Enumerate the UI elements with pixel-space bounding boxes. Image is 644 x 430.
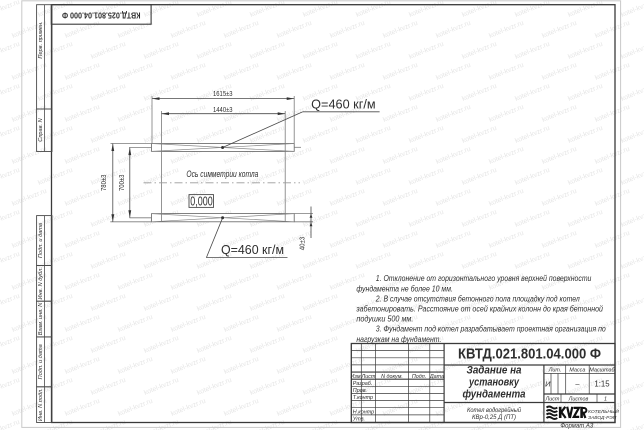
- svg-text:kotel-kvzr.ru: kotel-kvzr.ru: [382, 356, 419, 376]
- svg-text:КВр-0,25 Д (ПТ): КВр-0,25 Д (ПТ): [472, 414, 516, 421]
- svg-text:kotel-kvzr.ru: kotel-kvzr.ru: [223, 398, 260, 418]
- svg-text:kotel-kvzr.ru: kotel-kvzr.ru: [64, 62, 101, 82]
- svg-text:Т.контр: Т.контр: [353, 395, 373, 401]
- svg-text:КВТД.025.801.04.000 Ф: КВТД.025.801.04.000 Ф: [62, 10, 141, 19]
- svg-text:kotel-kvzr.ru: kotel-kvzr.ru: [0, 377, 21, 397]
- svg-text:kotel-kvzr.ru: kotel-kvzr.ru: [488, 20, 525, 40]
- svg-text:kotel-kvzr.ru: kotel-kvzr.ru: [514, 419, 551, 430]
- svg-text:kotel-kvzr.ru: kotel-kvzr.ru: [461, 41, 498, 61]
- svg-text:kotel-kvzr.ru: kotel-kvzr.ru: [64, 356, 101, 376]
- svg-text:kotel-kvzr.ru: kotel-kvzr.ru: [329, 230, 366, 250]
- svg-text:kotel-kvzr.ru: kotel-kvzr.ru: [514, 209, 551, 229]
- svg-text:kotel-kvzr.ru: kotel-kvzr.ru: [355, 41, 392, 61]
- svg-text:kotel-kvzr.ru: kotel-kvzr.ru: [249, 0, 286, 19]
- svg-text:kotel-kvzr.ru: kotel-kvzr.ru: [170, 62, 207, 82]
- svg-text:фундамента не более 10 мм.: фундамента не более 10 мм.: [356, 284, 453, 293]
- svg-text:kotel-kvzr.ru: kotel-kvzr.ru: [117, 314, 154, 334]
- svg-text:kotel-kvzr.ru: kotel-kvzr.ru: [382, 104, 419, 124]
- svg-text:kotel-kvzr.ru: kotel-kvzr.ru: [90, 83, 127, 103]
- svg-text:kotel-kvzr.ru: kotel-kvzr.ru: [276, 398, 313, 418]
- svg-text:Инв. N подл.: Инв. N подл.: [38, 388, 44, 421]
- svg-text:kotel-kvzr.ru: kotel-kvzr.ru: [620, 167, 644, 187]
- svg-text:забетонировать. Расстояние от: забетонировать. Расстояние от осей крайн…: [355, 305, 603, 314]
- svg-text:kotel-kvzr.ru: kotel-kvzr.ru: [0, 335, 21, 355]
- svg-text:kotel-kvzr.ru: kotel-kvzr.ru: [302, 419, 339, 430]
- svg-text:Лист: Лист: [545, 396, 560, 402]
- svg-text:kotel-kvzr.ru: kotel-kvzr.ru: [567, 251, 604, 271]
- svg-text:kotel-kvzr.ru: kotel-kvzr.ru: [302, 0, 339, 19]
- svg-text:kotel-kvzr.ru: kotel-kvzr.ru: [594, 62, 631, 82]
- svg-text:40±3: 40±3: [298, 237, 307, 251]
- svg-text:kotel-kvzr.ru: kotel-kvzr.ru: [249, 83, 286, 103]
- svg-text:Дата: Дата: [429, 374, 444, 380]
- svg-text:kotel-kvzr.ru: kotel-kvzr.ru: [329, 20, 366, 40]
- svg-text:kotel-kvzr.ru: kotel-kvzr.ru: [594, 104, 631, 124]
- svg-text:kotel-kvzr.ru: kotel-kvzr.ru: [0, 83, 21, 103]
- svg-text:Пров.: Пров.: [353, 388, 367, 394]
- svg-text:kotel-kvzr.ru: kotel-kvzr.ru: [143, 0, 180, 19]
- svg-text:kotel-kvzr.ru: kotel-kvzr.ru: [408, 251, 445, 271]
- svg-text:kotel-kvzr.ru: kotel-kvzr.ru: [435, 62, 472, 82]
- svg-text:kotel-kvzr.ru: kotel-kvzr.ru: [64, 20, 101, 40]
- svg-text:kotel-kvzr.ru: kotel-kvzr.ru: [620, 251, 644, 271]
- svg-text:kotel-kvzr.ru: kotel-kvzr.ru: [461, 167, 498, 187]
- svg-text:kotel-kvzr.ru: kotel-kvzr.ru: [355, 251, 392, 271]
- svg-text:kotel-kvzr.ru: kotel-kvzr.ru: [620, 419, 644, 430]
- svg-text:0,000: 0,000: [190, 194, 212, 208]
- svg-text:Инв. N дубл.: Инв. N дубл.: [38, 267, 44, 299]
- svg-text:kotel-kvzr.ru: kotel-kvzr.ru: [567, 209, 604, 229]
- svg-text:3. Фундамент под котел разраба: 3. Фундамент под котел разрабатывает про…: [376, 325, 607, 334]
- svg-text:kotel-kvzr.ru: kotel-kvzr.ru: [329, 188, 366, 208]
- svg-text:kotel-kvzr.ru: kotel-kvzr.ru: [541, 20, 578, 40]
- svg-text:kotel-kvzr.ru: kotel-kvzr.ru: [223, 356, 260, 376]
- svg-text:700±3: 700±3: [117, 175, 126, 192]
- svg-text:kotel-kvzr.ru: kotel-kvzr.ru: [90, 419, 127, 430]
- svg-text:kotel-kvzr.ru: kotel-kvzr.ru: [170, 314, 207, 334]
- svg-text:kotel-kvzr.ru: kotel-kvzr.ru: [329, 62, 366, 82]
- svg-text:kotel-kvzr.ru: kotel-kvzr.ru: [0, 0, 21, 19]
- svg-text:kotel-kvzr.ru: kotel-kvzr.ru: [117, 20, 154, 40]
- svg-text:kotel-kvzr.ru: kotel-kvzr.ru: [90, 293, 127, 313]
- svg-text:kotel-kvzr.ru: kotel-kvzr.ru: [594, 230, 631, 250]
- svg-text:kotel-kvzr.ru: kotel-kvzr.ru: [355, 125, 392, 145]
- svg-text:kotel-kvzr.ru: kotel-kvzr.ru: [11, 146, 48, 166]
- svg-text:kotel-kvzr.ru: kotel-kvzr.ru: [143, 41, 180, 61]
- svg-text:kotel-kvzr.ru: kotel-kvzr.ru: [355, 0, 392, 19]
- svg-text:kotel-kvzr.ru: kotel-kvzr.ru: [382, 62, 419, 82]
- svg-text:kotel-kvzr.ru: kotel-kvzr.ru: [514, 0, 551, 19]
- svg-text:Масштаб: Масштаб: [589, 367, 615, 373]
- svg-text:kotel-kvzr.ru: kotel-kvzr.ru: [64, 314, 101, 334]
- svg-text:kotel-kvzr.ru: kotel-kvzr.ru: [117, 146, 154, 166]
- svg-text:kotel-kvzr.ru: kotel-kvzr.ru: [276, 20, 313, 40]
- svg-text:kotel-kvzr.ru: kotel-kvzr.ru: [408, 167, 445, 187]
- svg-text:kotel-kvzr.ru: kotel-kvzr.ru: [276, 314, 313, 334]
- svg-text:kotel-kvzr.ru: kotel-kvzr.ru: [461, 0, 498, 19]
- svg-text:kotel-kvzr.ru: kotel-kvzr.ru: [620, 335, 644, 355]
- svg-text:kotel-kvzr.ru: kotel-kvzr.ru: [594, 188, 631, 208]
- svg-text:kotel-kvzr.ru: kotel-kvzr.ru: [514, 251, 551, 271]
- svg-text:kotel-kvzr.ru: kotel-kvzr.ru: [567, 41, 604, 61]
- svg-text:kotel-kvzr.ru: kotel-kvzr.ru: [329, 146, 366, 166]
- svg-text:kotel-kvzr.ru: kotel-kvzr.ru: [408, 41, 445, 61]
- svg-text:kotel-kvzr.ru: kotel-kvzr.ru: [64, 146, 101, 166]
- svg-text:kotel-kvzr.ru: kotel-kvzr.ru: [382, 20, 419, 40]
- svg-text:kotel-kvzr.ru: kotel-kvzr.ru: [196, 293, 233, 313]
- svg-text:kotel-kvzr.ru: kotel-kvzr.ru: [143, 83, 180, 103]
- svg-text:kotel-kvzr.ru: kotel-kvzr.ru: [514, 41, 551, 61]
- svg-text:kotel-kvzr.ru: kotel-kvzr.ru: [302, 125, 339, 145]
- svg-text:Задание на: Задание на: [467, 365, 522, 377]
- svg-text:kotel-kvzr.ru: kotel-kvzr.ru: [488, 230, 525, 250]
- svg-text:kotel-kvzr.ru: kotel-kvzr.ru: [276, 356, 313, 376]
- svg-text:ЗАВОД-РЭП: ЗАВОД-РЭП: [588, 415, 617, 421]
- svg-text:1. Отклонение от горизонтально: 1. Отклонение от горизонтального уровня …: [376, 274, 592, 283]
- svg-text:Лист: Лист: [361, 374, 376, 380]
- svg-text:kotel-kvzr.ru: kotel-kvzr.ru: [541, 104, 578, 124]
- svg-text:kotel-kvzr.ru: kotel-kvzr.ru: [302, 293, 339, 313]
- svg-text:kotel-kvzr.ru: kotel-kvzr.ru: [488, 62, 525, 82]
- svg-text:kotel-kvzr.ru: kotel-kvzr.ru: [249, 377, 286, 397]
- svg-text:kotel-kvzr.ru: kotel-kvzr.ru: [620, 41, 644, 61]
- svg-text:kotel-kvzr.ru: kotel-kvzr.ru: [382, 188, 419, 208]
- svg-text:kotel-kvzr.ru: kotel-kvzr.ru: [620, 293, 644, 313]
- svg-text:kotel-kvzr.ru: kotel-kvzr.ru: [170, 398, 207, 418]
- svg-text:kotel-kvzr.ru: kotel-kvzr.ru: [11, 188, 48, 208]
- svg-text:kotel-kvzr.ru: kotel-kvzr.ru: [117, 272, 154, 292]
- svg-text:kotel-kvzr.ru: kotel-kvzr.ru: [117, 398, 154, 418]
- svg-text:Котел водогрейный: Котел водогрейный: [467, 406, 521, 414]
- svg-text:Ось симметрии котла: Ось симметрии котла: [186, 169, 258, 179]
- svg-text:Разраб.: Разраб.: [353, 381, 373, 387]
- svg-text:kotel-kvzr.ru: kotel-kvzr.ru: [408, 83, 445, 103]
- svg-text:kotel-kvzr.ru: kotel-kvzr.ru: [276, 188, 313, 208]
- svg-text:kotel-kvzr.ru: kotel-kvzr.ru: [196, 0, 233, 19]
- svg-text:kotel-kvzr.ru: kotel-kvzr.ru: [302, 41, 339, 61]
- svg-text:kotel-kvzr.ru: kotel-kvzr.ru: [0, 125, 21, 145]
- svg-text:kotel-kvzr.ru: kotel-kvzr.ru: [461, 83, 498, 103]
- svg-text:1: 1: [604, 396, 607, 402]
- svg-text:kotel-kvzr.ru: kotel-kvzr.ru: [276, 272, 313, 292]
- svg-text:kotel-kvzr.ru: kotel-kvzr.ru: [541, 62, 578, 82]
- svg-text:kotel-kvzr.ru: kotel-kvzr.ru: [117, 230, 154, 250]
- svg-text:kotel-kvzr.ru: kotel-kvzr.ru: [488, 104, 525, 124]
- svg-text:kotel-kvzr.ru: kotel-kvzr.ru: [143, 377, 180, 397]
- svg-text:kotel-kvzr.ru: kotel-kvzr.ru: [90, 209, 127, 229]
- svg-text:Перв. примен.: Перв. примен.: [38, 21, 44, 58]
- svg-text:kotel-kvzr.ru: kotel-kvzr.ru: [567, 167, 604, 187]
- svg-text:kotel-kvzr.ru: kotel-kvzr.ru: [196, 41, 233, 61]
- svg-text:kotel-kvzr.ru: kotel-kvzr.ru: [620, 83, 644, 103]
- svg-text:kotel-kvzr.ru: kotel-kvzr.ru: [64, 104, 101, 124]
- svg-text:kotel-kvzr.ru: kotel-kvzr.ru: [196, 125, 233, 145]
- svg-text:kotel-kvzr.ru: kotel-kvzr.ru: [435, 230, 472, 250]
- svg-text:kotel-kvzr.ru: kotel-kvzr.ru: [541, 146, 578, 166]
- svg-text:kotel-kvzr.ru: kotel-kvzr.ru: [143, 251, 180, 271]
- svg-text:kotel-kvzr.ru: kotel-kvzr.ru: [620, 0, 644, 19]
- svg-text:kotel-kvzr.ru: kotel-kvzr.ru: [329, 356, 366, 376]
- svg-text:2. В случае отсутствия бетонно: 2. В случае отсутствия бетонного пола пл…: [375, 294, 580, 303]
- svg-text:kotel-kvzr.ru: kotel-kvzr.ru: [196, 419, 233, 430]
- svg-text:kotel-kvzr.ru: kotel-kvzr.ru: [64, 230, 101, 250]
- svg-text:kotel-kvzr.ru: kotel-kvzr.ru: [249, 41, 286, 61]
- svg-text:Формат А3: Формат А3: [560, 424, 593, 430]
- svg-text:kotel-kvzr.ru: kotel-kvzr.ru: [541, 188, 578, 208]
- svg-text:kotel-kvzr.ru: kotel-kvzr.ru: [11, 62, 48, 82]
- svg-text:kotel-kvzr.ru: kotel-kvzr.ru: [461, 251, 498, 271]
- svg-text:фундамента: фундамента: [463, 389, 526, 401]
- svg-text:N докум.: N докум.: [381, 374, 403, 380]
- svg-text:kotel-kvzr.ru: kotel-kvzr.ru: [170, 230, 207, 250]
- svg-text:kotel-kvzr.ru: kotel-kvzr.ru: [249, 419, 286, 430]
- svg-text:kotel-kvzr.ru: kotel-kvzr.ru: [382, 230, 419, 250]
- svg-text:КВТД.021.801.04.000 Ф: КВТД.021.801.04.000 Ф: [458, 346, 601, 362]
- svg-text:Взам. инв. N: Взам. инв. N: [38, 302, 44, 336]
- svg-text:kotel-kvzr.ru: kotel-kvzr.ru: [90, 251, 127, 271]
- svg-text:kotel-kvzr.ru: kotel-kvzr.ru: [567, 83, 604, 103]
- svg-text:kotel-kvzr.ru: kotel-kvzr.ru: [249, 335, 286, 355]
- svg-text:kotel-kvzr.ru: kotel-kvzr.ru: [0, 251, 21, 271]
- svg-text:kotel-kvzr.ru: kotel-kvzr.ru: [488, 146, 525, 166]
- svg-text:kotel-kvzr.ru: kotel-kvzr.ru: [90, 125, 127, 145]
- svg-text:kotel-kvzr.ru: kotel-kvzr.ru: [0, 167, 21, 187]
- svg-text:kotel-kvzr.ru: kotel-kvzr.ru: [0, 293, 21, 313]
- svg-text:И: И: [545, 380, 551, 389]
- svg-text:kotel-kvzr.ru: kotel-kvzr.ru: [37, 83, 74, 103]
- svg-text:kotel-kvzr.ru: kotel-kvzr.ru: [223, 314, 260, 334]
- svg-text:kotel-kvzr.ru: kotel-kvzr.ru: [488, 188, 525, 208]
- svg-text:kotel-kvzr.ru: kotel-kvzr.ru: [620, 125, 644, 145]
- svg-text:Утв.: Утв.: [352, 417, 365, 423]
- svg-text:kotel-kvzr.ru: kotel-kvzr.ru: [302, 377, 339, 397]
- svg-text:kotel-kvzr.ru: kotel-kvzr.ru: [223, 272, 260, 292]
- svg-text:kotel-kvzr.ru: kotel-kvzr.ru: [620, 209, 644, 229]
- svg-text:kotel-kvzr.ru: kotel-kvzr.ru: [117, 62, 154, 82]
- svg-text:kotel-kvzr.ru: kotel-kvzr.ru: [620, 377, 644, 397]
- svg-text:установку: установку: [468, 377, 520, 389]
- svg-text:kotel-kvzr.ru: kotel-kvzr.ru: [223, 20, 260, 40]
- svg-text:Справ. N: Справ. N: [38, 117, 44, 141]
- svg-text:kotel-kvzr.ru: kotel-kvzr.ru: [117, 104, 154, 124]
- svg-text:kotel-kvzr.ru: kotel-kvzr.ru: [223, 188, 260, 208]
- svg-text:Подп. и дата: Подп. и дата: [38, 344, 44, 379]
- svg-text:kotel-kvzr.ru: kotel-kvzr.ru: [461, 125, 498, 145]
- svg-text:kotel-kvzr.ru: kotel-kvzr.ru: [90, 41, 127, 61]
- svg-text:kotel-kvzr.ru: kotel-kvzr.ru: [541, 230, 578, 250]
- svg-text:kotel-kvzr.ru: kotel-kvzr.ru: [117, 356, 154, 376]
- svg-text:kotel-kvzr.ru: kotel-kvzr.ru: [0, 419, 21, 430]
- svg-text:1440±3: 1440±3: [213, 105, 233, 114]
- svg-text:kotel-kvzr.ru: kotel-kvzr.ru: [594, 146, 631, 166]
- svg-text:kotel-kvzr.ru: kotel-kvzr.ru: [170, 272, 207, 292]
- svg-text:kotel-kvzr.ru: kotel-kvzr.ru: [408, 419, 445, 430]
- svg-text:kotel-kvzr.ru: kotel-kvzr.ru: [64, 398, 101, 418]
- svg-text:kotel-kvzr.ru: kotel-kvzr.ru: [514, 83, 551, 103]
- svg-text:kotel-kvzr.ru: kotel-kvzr.ru: [408, 125, 445, 145]
- svg-text:kotel-kvzr.ru: kotel-kvzr.ru: [143, 335, 180, 355]
- svg-text:kotel-kvzr.ru: kotel-kvzr.ru: [143, 293, 180, 313]
- svg-text:kotel-kvzr.ru: kotel-kvzr.ru: [196, 377, 233, 397]
- svg-text:kotel-kvzr.ru: kotel-kvzr.ru: [90, 377, 127, 397]
- svg-text:kotel-kvzr.ru: kotel-kvzr.ru: [302, 335, 339, 355]
- svg-text:Н.контр: Н.контр: [353, 410, 374, 416]
- svg-text:kotel-kvzr.ru: kotel-kvzr.ru: [0, 41, 21, 61]
- svg-text:kotel-kvzr.ru: kotel-kvzr.ru: [223, 62, 260, 82]
- svg-text:kotel-kvzr.ru: kotel-kvzr.ru: [249, 293, 286, 313]
- svg-text:kotel-kvzr.ru: kotel-kvzr.ru: [302, 251, 339, 271]
- svg-text:Подп. и дата: Подп. и дата: [38, 223, 44, 258]
- svg-text:kotel-kvzr.ru: kotel-kvzr.ru: [435, 146, 472, 166]
- svg-text:kotel-kvzr.ru: kotel-kvzr.ru: [514, 167, 551, 187]
- svg-text:kotel-kvzr.ru: kotel-kvzr.ru: [408, 209, 445, 229]
- svg-text:Масса: Масса: [569, 367, 585, 373]
- svg-text:kotel-kvzr.ru: kotel-kvzr.ru: [0, 209, 21, 229]
- svg-text:kotel-kvzr.ru: kotel-kvzr.ru: [594, 20, 631, 40]
- svg-text:kotel-kvzr.ru: kotel-kvzr.ru: [382, 146, 419, 166]
- svg-text:kotel-kvzr.ru: kotel-kvzr.ru: [408, 0, 445, 19]
- svg-text:Изм.: Изм.: [351, 374, 363, 380]
- svg-text:kotel-kvzr.ru: kotel-kvzr.ru: [64, 188, 101, 208]
- svg-text:kotel-kvzr.ru: kotel-kvzr.ru: [514, 125, 551, 145]
- svg-text:kotel-kvzr.ru: kotel-kvzr.ru: [196, 335, 233, 355]
- svg-text:подушки 500 мм.: подушки 500 мм.: [356, 315, 413, 324]
- svg-text:1615±3: 1615±3: [213, 89, 233, 98]
- svg-text:kotel-kvzr.ru: kotel-kvzr.ru: [355, 209, 392, 229]
- svg-text:kotel-kvzr.ru: kotel-kvzr.ru: [64, 272, 101, 292]
- svg-text:kotel-kvzr.ru: kotel-kvzr.ru: [355, 167, 392, 187]
- svg-text:kotel-kvzr.ru: kotel-kvzr.ru: [37, 167, 74, 187]
- svg-text:Q=460 кг/м: Q=460 кг/м: [221, 243, 284, 257]
- svg-text:kotel-kvzr.ru: kotel-kvzr.ru: [435, 20, 472, 40]
- svg-text:нагрузкам на фундамент.: нагрузкам на фундамент.: [356, 335, 441, 344]
- svg-text:kotel-kvzr.ru: kotel-kvzr.ru: [302, 167, 339, 187]
- svg-text:kotel-kvzr.ru: kotel-kvzr.ru: [567, 0, 604, 19]
- svg-text:kotel-kvzr.ru: kotel-kvzr.ru: [594, 272, 631, 292]
- svg-text:kotel-kvzr.ru: kotel-kvzr.ru: [276, 62, 313, 82]
- svg-text:kotel-kvzr.ru: kotel-kvzr.ru: [143, 419, 180, 430]
- svg-text:kotel-kvzr.ru: kotel-kvzr.ru: [90, 335, 127, 355]
- svg-text:kotel-kvzr.ru: kotel-kvzr.ru: [302, 209, 339, 229]
- svg-text:kotel-kvzr.ru: kotel-kvzr.ru: [170, 20, 207, 40]
- svg-text:Листов: Листов: [568, 396, 589, 402]
- svg-text:1:15: 1:15: [594, 380, 610, 389]
- svg-text:kotel-kvzr.ru: kotel-kvzr.ru: [170, 356, 207, 376]
- svg-text:Лит.: Лит.: [548, 367, 562, 373]
- svg-text:kotel-kvzr.ru: kotel-kvzr.ru: [435, 104, 472, 124]
- svg-text:Подп.: Подп.: [412, 374, 426, 380]
- svg-text:kotel-kvzr.ru: kotel-kvzr.ru: [567, 125, 604, 145]
- svg-text:kotel-kvzr.ru: kotel-kvzr.ru: [435, 188, 472, 208]
- svg-text:780±3: 780±3: [99, 175, 108, 192]
- svg-text:Q=460 кг/м: Q=460 кг/м: [311, 98, 375, 112]
- svg-text:kotel-kvzr.ru: kotel-kvzr.ru: [461, 209, 498, 229]
